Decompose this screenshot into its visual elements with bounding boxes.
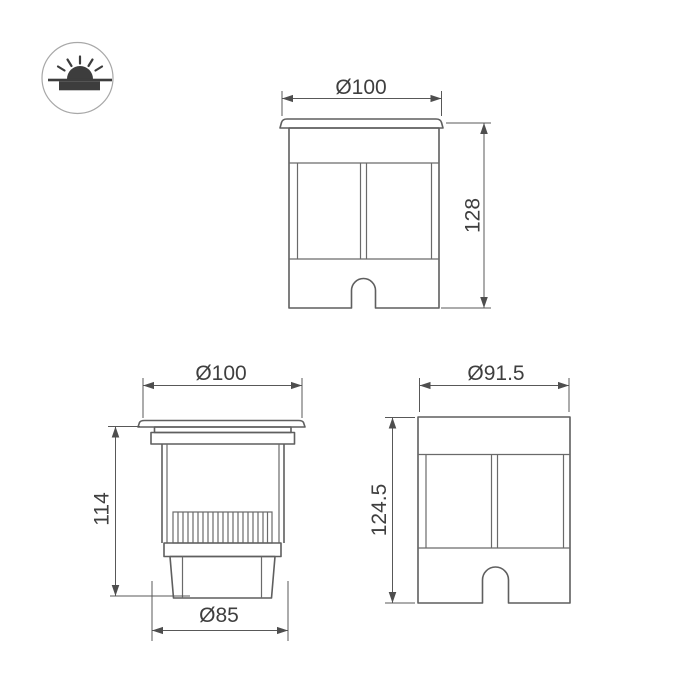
dim-housing-diameter: Ø91.5 <box>420 362 570 412</box>
section-view <box>138 421 305 599</box>
dim-section-height: 114 <box>91 427 191 597</box>
dim-section-diameter: Ø100 <box>143 362 302 418</box>
drawing-canvas: Ø100 128 Ø100 <box>0 0 700 700</box>
heatsink-fins <box>178 512 268 543</box>
section-base <box>170 557 275 599</box>
dim-front-height-label: 128 <box>462 198 485 233</box>
housing-body-outline <box>418 417 570 603</box>
icon-lamp-body <box>59 81 100 90</box>
dim-section-diameter-label: Ø100 <box>195 362 246 385</box>
dim-section-base-label: Ø85 <box>199 604 239 627</box>
dim-front-diameter: Ø100 <box>282 76 442 116</box>
housing-inner-lines <box>418 455 570 549</box>
section-base-inner-lines <box>183 557 262 599</box>
icon-lamp-dome <box>67 66 93 79</box>
front-body-outline <box>289 128 439 308</box>
section-band <box>164 543 281 557</box>
section-flange <box>138 421 305 428</box>
icon-ground-line <box>48 79 112 82</box>
dim-front-height: 128 <box>441 123 491 308</box>
front-inner-lines <box>289 163 439 259</box>
dim-front-diameter-label: Ø100 <box>335 76 386 99</box>
recessed-light-icon <box>42 43 113 114</box>
front-view <box>280 119 443 308</box>
dim-section-height-label: 114 <box>91 492 114 526</box>
section-flange-lip <box>155 427 292 433</box>
housing-view <box>418 417 570 603</box>
dim-housing-diameter-label: Ø91.5 <box>467 362 524 385</box>
dim-housing-height-label: 124.5 <box>368 484 391 537</box>
dim-section-height-lines <box>108 427 190 597</box>
technical-drawing-page: Ø100 128 Ø100 <box>0 0 700 700</box>
front-flange <box>280 119 443 128</box>
dim-housing-height: 124.5 <box>368 418 415 604</box>
section-collar <box>151 433 295 445</box>
